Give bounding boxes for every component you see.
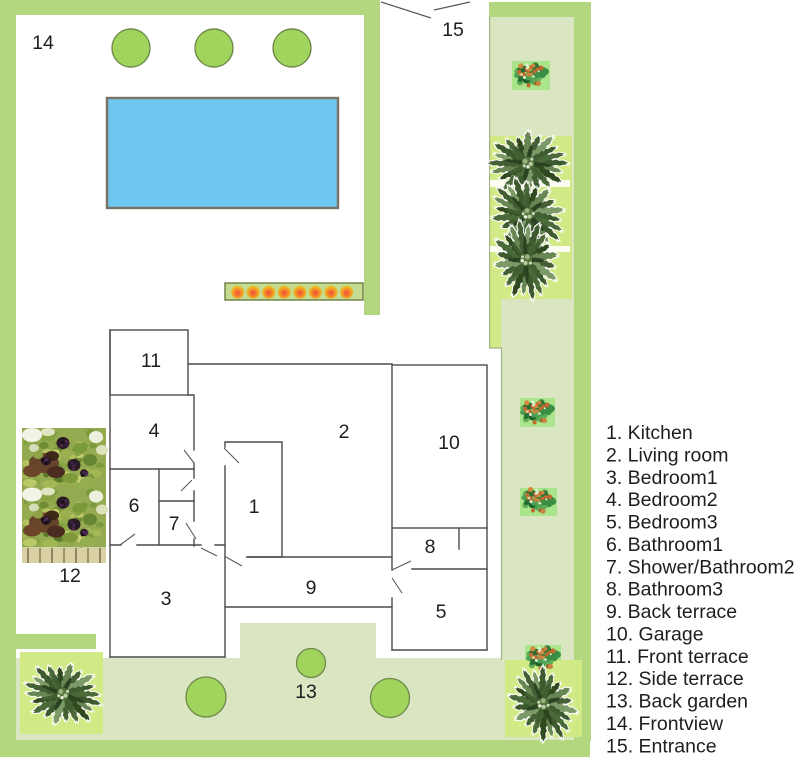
svg-text:8. Bathroom3: 8. Bathroom3 bbox=[606, 579, 723, 601]
svg-text:11: 11 bbox=[141, 350, 161, 372]
svg-text:5: 5 bbox=[436, 601, 447, 623]
svg-text:9: 9 bbox=[306, 577, 317, 599]
svg-text:5. Bedroom3: 5. Bedroom3 bbox=[606, 512, 718, 534]
svg-text:4: 4 bbox=[149, 420, 160, 442]
svg-text:14: 14 bbox=[32, 32, 54, 54]
svg-text:1: 1 bbox=[249, 496, 260, 518]
svg-text:6: 6 bbox=[129, 495, 140, 517]
svg-text:3: 3 bbox=[161, 588, 172, 610]
svg-text:15. Entrance: 15. Entrance bbox=[606, 735, 717, 757]
svg-text:4. Bedroom2: 4. Bedroom2 bbox=[606, 489, 718, 511]
svg-text:2: 2 bbox=[339, 421, 350, 443]
svg-text:11. Front terrace: 11. Front terrace bbox=[606, 646, 749, 668]
svg-text:9. Back terrace: 9. Back terrace bbox=[606, 601, 737, 623]
svg-text:12: 12 bbox=[59, 565, 81, 587]
svg-text:15: 15 bbox=[442, 19, 464, 41]
svg-text:8: 8 bbox=[425, 536, 436, 558]
svg-text:12. Side terrace: 12. Side terrace bbox=[606, 668, 744, 690]
svg-text:7. Shower/Bathroom2: 7. Shower/Bathroom2 bbox=[606, 556, 795, 578]
svg-text:2. Living room: 2. Living room bbox=[606, 444, 728, 466]
svg-text:10. Garage: 10. Garage bbox=[606, 623, 704, 645]
svg-text:10: 10 bbox=[438, 432, 460, 454]
svg-text:6. Bathroom1: 6. Bathroom1 bbox=[606, 534, 723, 556]
svg-text:3. Bedroom1: 3. Bedroom1 bbox=[606, 467, 718, 489]
svg-text:14. Frontview: 14. Frontview bbox=[606, 713, 724, 735]
svg-text:7: 7 bbox=[169, 513, 180, 535]
svg-text:1. Kitchen: 1. Kitchen bbox=[606, 422, 693, 444]
svg-text:13. Back garden: 13. Back garden bbox=[606, 691, 748, 713]
svg-text:13: 13 bbox=[295, 681, 317, 703]
